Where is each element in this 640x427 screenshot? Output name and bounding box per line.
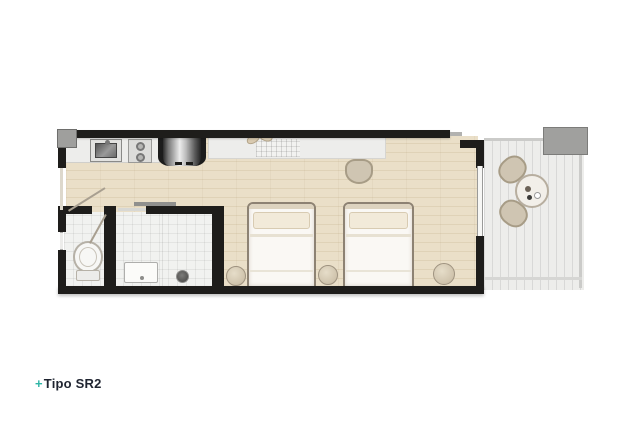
sliding-glass-door xyxy=(477,166,483,236)
duvet-tuck xyxy=(250,270,313,272)
sink-basin xyxy=(95,143,117,158)
wall-bottom xyxy=(58,286,484,294)
pillow xyxy=(349,212,408,229)
shower-partition-line xyxy=(162,214,163,286)
balcony-railing-right xyxy=(579,138,582,288)
pouf-1 xyxy=(226,266,246,286)
faucet-icon xyxy=(105,140,110,145)
double-bed-1 xyxy=(247,202,316,288)
desk-chair xyxy=(345,159,373,184)
title-plus-icon: + xyxy=(35,376,43,391)
toilet xyxy=(73,241,103,273)
left-window xyxy=(60,232,63,250)
bathroom-vanity xyxy=(124,262,158,283)
duvet-fold xyxy=(346,234,411,237)
planter-box xyxy=(543,127,588,155)
double-bed-2 xyxy=(343,202,414,288)
balcony-table xyxy=(515,174,549,208)
cup-icon xyxy=(525,186,531,192)
entry-threshold xyxy=(60,168,63,210)
headboard xyxy=(249,204,314,209)
fridge-handle-icon xyxy=(186,162,193,165)
pouf-2 xyxy=(318,265,338,285)
window-segment-top xyxy=(450,132,462,136)
kitchen-sink xyxy=(90,139,122,162)
duvet-tuck xyxy=(346,270,411,272)
shower-drain xyxy=(176,270,189,283)
wall-right-top xyxy=(476,140,484,168)
floor-plan: +Tipo SR2 xyxy=(0,0,640,427)
burner-icon xyxy=(136,153,145,162)
wall-top xyxy=(58,130,450,138)
title-text: Tipo SR2 xyxy=(44,376,102,391)
wall-wc-bath-divider xyxy=(104,206,116,288)
burner-icon xyxy=(136,142,145,151)
bathroom-sliding-door xyxy=(134,202,176,206)
cup-icon xyxy=(534,192,541,199)
utility-shaft xyxy=(57,129,77,148)
toilet-tank xyxy=(76,270,100,281)
wall-bath-bedroom xyxy=(212,206,224,288)
cooktop xyxy=(128,139,152,163)
pillow xyxy=(253,212,310,229)
pouf-3 xyxy=(433,263,455,285)
cup-icon xyxy=(527,195,532,200)
vanity-knob-icon xyxy=(140,276,144,280)
plan-title: +Tipo SR2 xyxy=(35,376,102,391)
dish-rack xyxy=(256,139,300,157)
headboard xyxy=(345,204,412,209)
balcony-railing-bottom xyxy=(484,277,582,280)
fridge-handle-icon xyxy=(175,162,182,165)
balcony-railing-top xyxy=(484,138,546,141)
toilet-seat xyxy=(79,247,97,267)
bathroom-door-threshold xyxy=(118,208,146,211)
duvet-fold xyxy=(250,234,313,237)
